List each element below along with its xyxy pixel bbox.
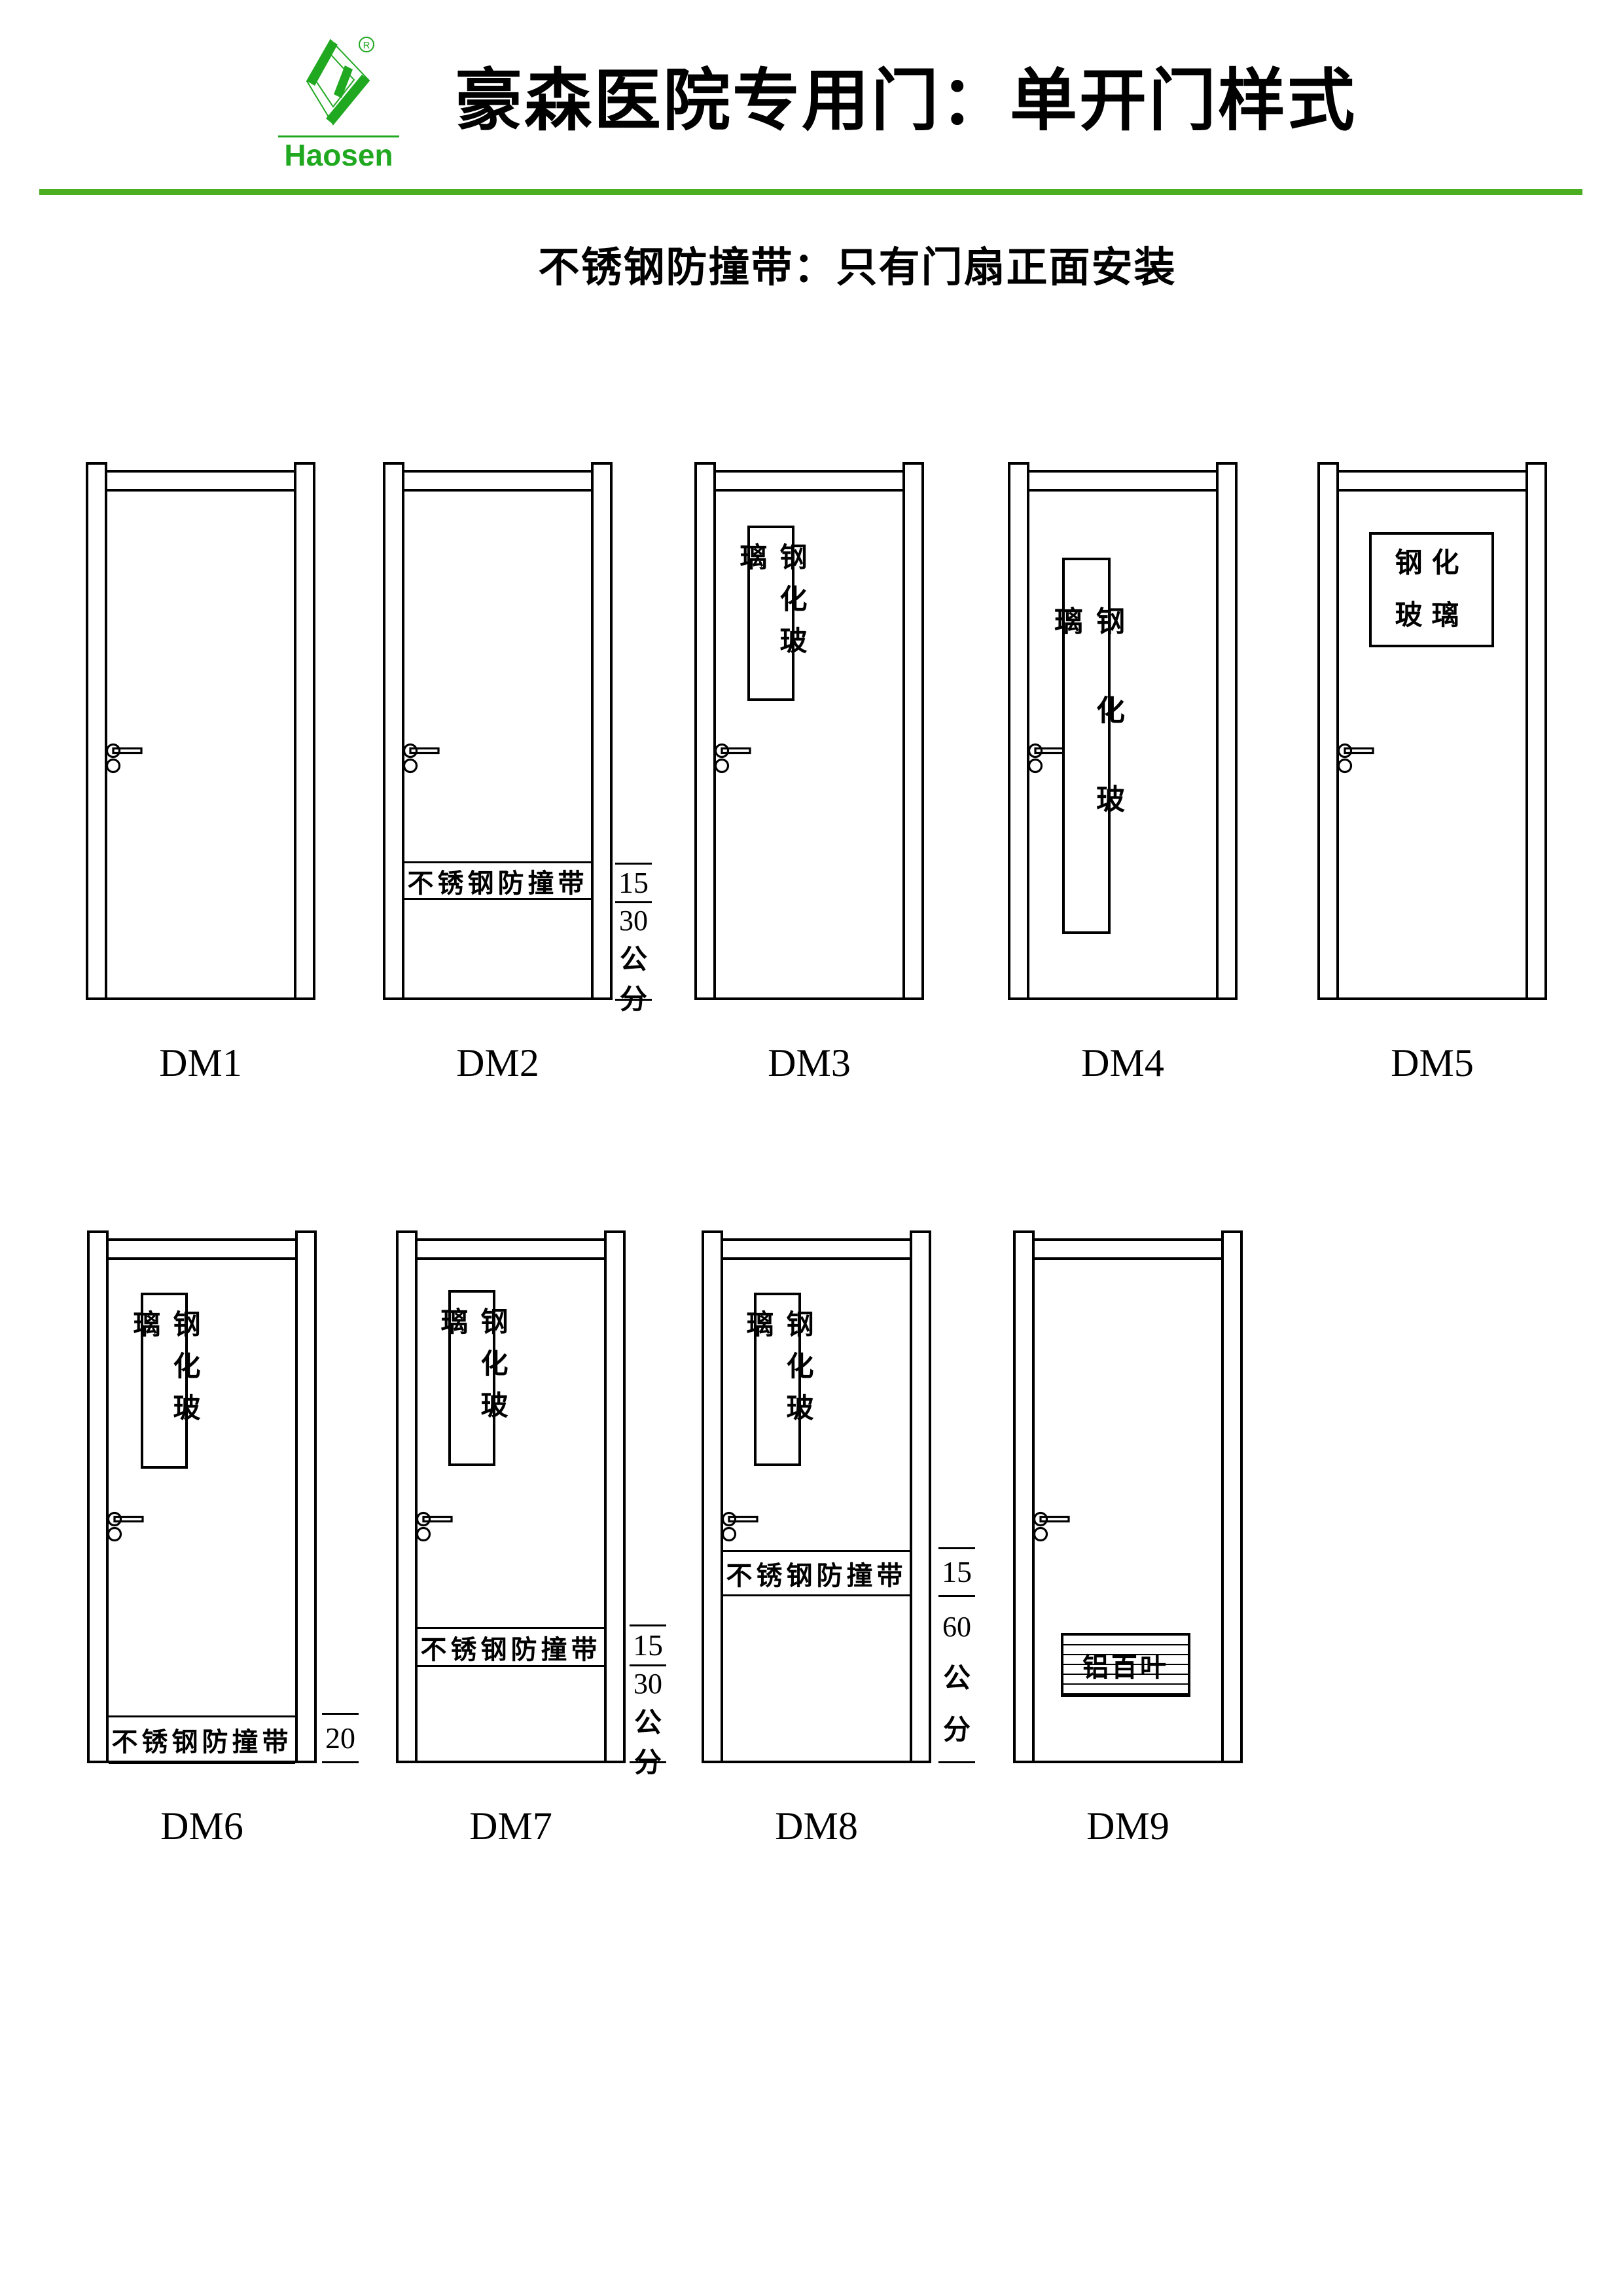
door-handle-icon — [1029, 744, 1075, 776]
door-frame-right-post — [1525, 462, 1547, 1000]
bumper-strip-label: 不锈钢防撞带 — [112, 1721, 293, 1759]
door-dm5: 钢化 玻璃 DM5 — [1317, 462, 1547, 1000]
door-frame-right-post — [294, 462, 315, 1000]
door-leaf: 钢化玻璃 — [713, 489, 905, 1000]
header-divider — [39, 189, 1582, 195]
door-label: DM8 — [702, 1804, 931, 1849]
glass-window: 钢化玻璃 — [754, 1293, 801, 1466]
door-frame-right-post — [902, 462, 924, 1000]
glass-label: 钢化 玻璃 — [1395, 537, 1468, 642]
glass-label: 钢化玻璃 — [432, 1293, 512, 1463]
dim-unit-char: 公 — [620, 937, 647, 977]
dim-tick — [630, 1664, 666, 1666]
door-label: DM7 — [396, 1804, 626, 1849]
door-label: DM6 — [87, 1804, 317, 1849]
dim-strip-height: 15 — [938, 1551, 975, 1592]
door-dm2: 不锈钢防撞带 DM2 — [383, 462, 613, 1000]
door-leaf: 不锈钢防撞带 — [402, 489, 594, 1000]
haosen-logo: R — [288, 34, 386, 132]
bumper-strip: 不锈钢防撞带 — [723, 1550, 910, 1596]
door-frame-right-post — [604, 1230, 626, 1763]
door-leaf: 钢化玻璃 不锈钢防撞带 — [415, 1257, 607, 1763]
door-handle-icon — [1339, 744, 1385, 776]
bumper-strip-label: 不锈钢防撞带 — [726, 1554, 907, 1592]
dim-offset-group: 30 公 分 — [615, 904, 652, 997]
glass-label: 钢化玻璃 — [124, 1295, 204, 1466]
door-label: DM4 — [1008, 1041, 1238, 1086]
door-handle-icon — [418, 1512, 463, 1545]
dim-unit-char: 分 — [620, 977, 647, 1017]
page-subtitle: 不锈钢防撞带：只有门扇正面安装 — [92, 234, 1623, 294]
door-handle-icon — [404, 744, 450, 776]
dim-strip-height: 15 — [630, 1627, 666, 1663]
dim-tick — [615, 901, 652, 903]
louver-label: 铝百叶 — [1082, 1646, 1169, 1684]
dim-strip-height: 15 — [615, 865, 652, 900]
door-label: DM2 — [383, 1041, 613, 1086]
dim-offset-value: 30 — [619, 904, 648, 937]
dim-tick — [322, 1761, 359, 1763]
door-label: DM1 — [86, 1041, 315, 1086]
door-handle-icon — [109, 1512, 154, 1545]
catalog-page: R Haosen 豪森医院专用门：单开门样式 不锈钢防撞带：只有门扇正面安装 D… — [0, 0, 1623, 2296]
dimension-annotation-dm2: 15 30 公 分 — [615, 863, 652, 1001]
door-frame-right-post — [1216, 462, 1238, 1000]
bumper-strip-label: 不锈钢防撞带 — [408, 862, 588, 900]
door-dm1: DM1 — [86, 462, 315, 1000]
dim-tick — [938, 1761, 975, 1763]
page-title: 豪森医院专用门：单开门样式 — [455, 46, 1357, 143]
door-handle-icon — [107, 744, 153, 776]
bumper-strip: 不锈钢防撞带 — [418, 1627, 604, 1667]
glass-label: 钢化玻璃 — [731, 528, 811, 698]
glass-window: 钢化 玻璃 — [1369, 532, 1494, 647]
dim-strip-height: 20 — [322, 1715, 359, 1760]
dimension-annotation-dm8: 15 60 公 分 — [938, 1547, 975, 1763]
door-handle-icon — [1035, 1512, 1080, 1545]
door-handle-icon — [723, 1512, 769, 1545]
registered-mark-letter: R — [363, 40, 370, 51]
door-dm9: 铝百叶 DM9 — [1013, 1230, 1243, 1763]
dim-offset-value: 30 — [633, 1667, 662, 1700]
door-leaf: 钢化玻璃 不锈钢防撞带 — [106, 1257, 298, 1763]
door-label: DM5 — [1317, 1041, 1547, 1086]
dim-unit-char: 公 — [634, 1700, 662, 1740]
door-handle-icon — [716, 744, 762, 776]
glass-label-line1: 钢化 — [1395, 537, 1468, 590]
bumper-strip-label: 不锈钢防撞带 — [421, 1628, 601, 1666]
dim-offset-group: 60 公 分 — [938, 1598, 975, 1760]
dim-offset-value: 60 — [942, 1610, 971, 1643]
dimension-annotation-dm7: 15 30 公 分 — [630, 1624, 666, 1763]
door-leaf: 钢化 玻璃 — [1336, 489, 1528, 1000]
door-dm7: 钢化玻璃 不锈钢防撞带 DM7 — [396, 1230, 626, 1763]
dimension-annotation-dm6: 20 — [322, 1713, 359, 1763]
door-frame-right-post — [1221, 1230, 1243, 1763]
door-label: DM9 — [1013, 1804, 1243, 1849]
door-dm4: 钢化玻璃 DM4 — [1008, 462, 1238, 1000]
logo-band-upper-left — [307, 40, 338, 86]
dim-tick — [322, 1713, 359, 1715]
door-frame-right-post — [295, 1230, 317, 1763]
dim-tick — [630, 1761, 666, 1763]
door-dm6: 钢化玻璃 不锈钢防撞带 DM6 — [87, 1230, 317, 1763]
glass-label-line2: 玻璃 — [1395, 590, 1468, 642]
dim-tick — [938, 1595, 975, 1597]
door-frame-right-post — [591, 462, 613, 1000]
bumper-strip: 不锈钢防撞带 — [109, 1715, 295, 1764]
dim-unit-char: 分 — [634, 1740, 662, 1780]
door-dm3: 钢化玻璃 DM3 — [694, 462, 924, 1000]
door-leaf: 钢化玻璃 不锈钢防撞带 — [721, 1257, 912, 1763]
door-dm8: 钢化玻璃 不锈钢防撞带 DM8 — [702, 1230, 931, 1763]
dim-tick — [630, 1624, 666, 1626]
bumper-strip: 不锈钢防撞带 — [404, 861, 591, 900]
dim-unit-char: 公 — [943, 1656, 971, 1696]
dim-unit-char: 分 — [943, 1708, 971, 1748]
glass-label: 钢化玻璃 — [738, 1295, 817, 1463]
glass-window: 钢化玻璃 — [747, 526, 794, 701]
door-label: DM3 — [694, 1041, 924, 1086]
dim-tick — [615, 999, 652, 1001]
door-frame-right-post — [910, 1230, 931, 1763]
glass-window: 钢化玻璃 — [141, 1293, 188, 1469]
door-leaf: 铝百叶 — [1032, 1257, 1224, 1763]
dim-offset-group: 30 公 分 — [630, 1667, 666, 1760]
door-leaf — [105, 489, 296, 1000]
door-leaf: 钢化玻璃 — [1027, 489, 1219, 1000]
brand-name: Haosen — [265, 137, 412, 173]
louver-panel: 铝百叶 — [1061, 1633, 1190, 1697]
glass-window: 钢化玻璃 — [448, 1290, 495, 1466]
dim-tick — [938, 1547, 975, 1549]
